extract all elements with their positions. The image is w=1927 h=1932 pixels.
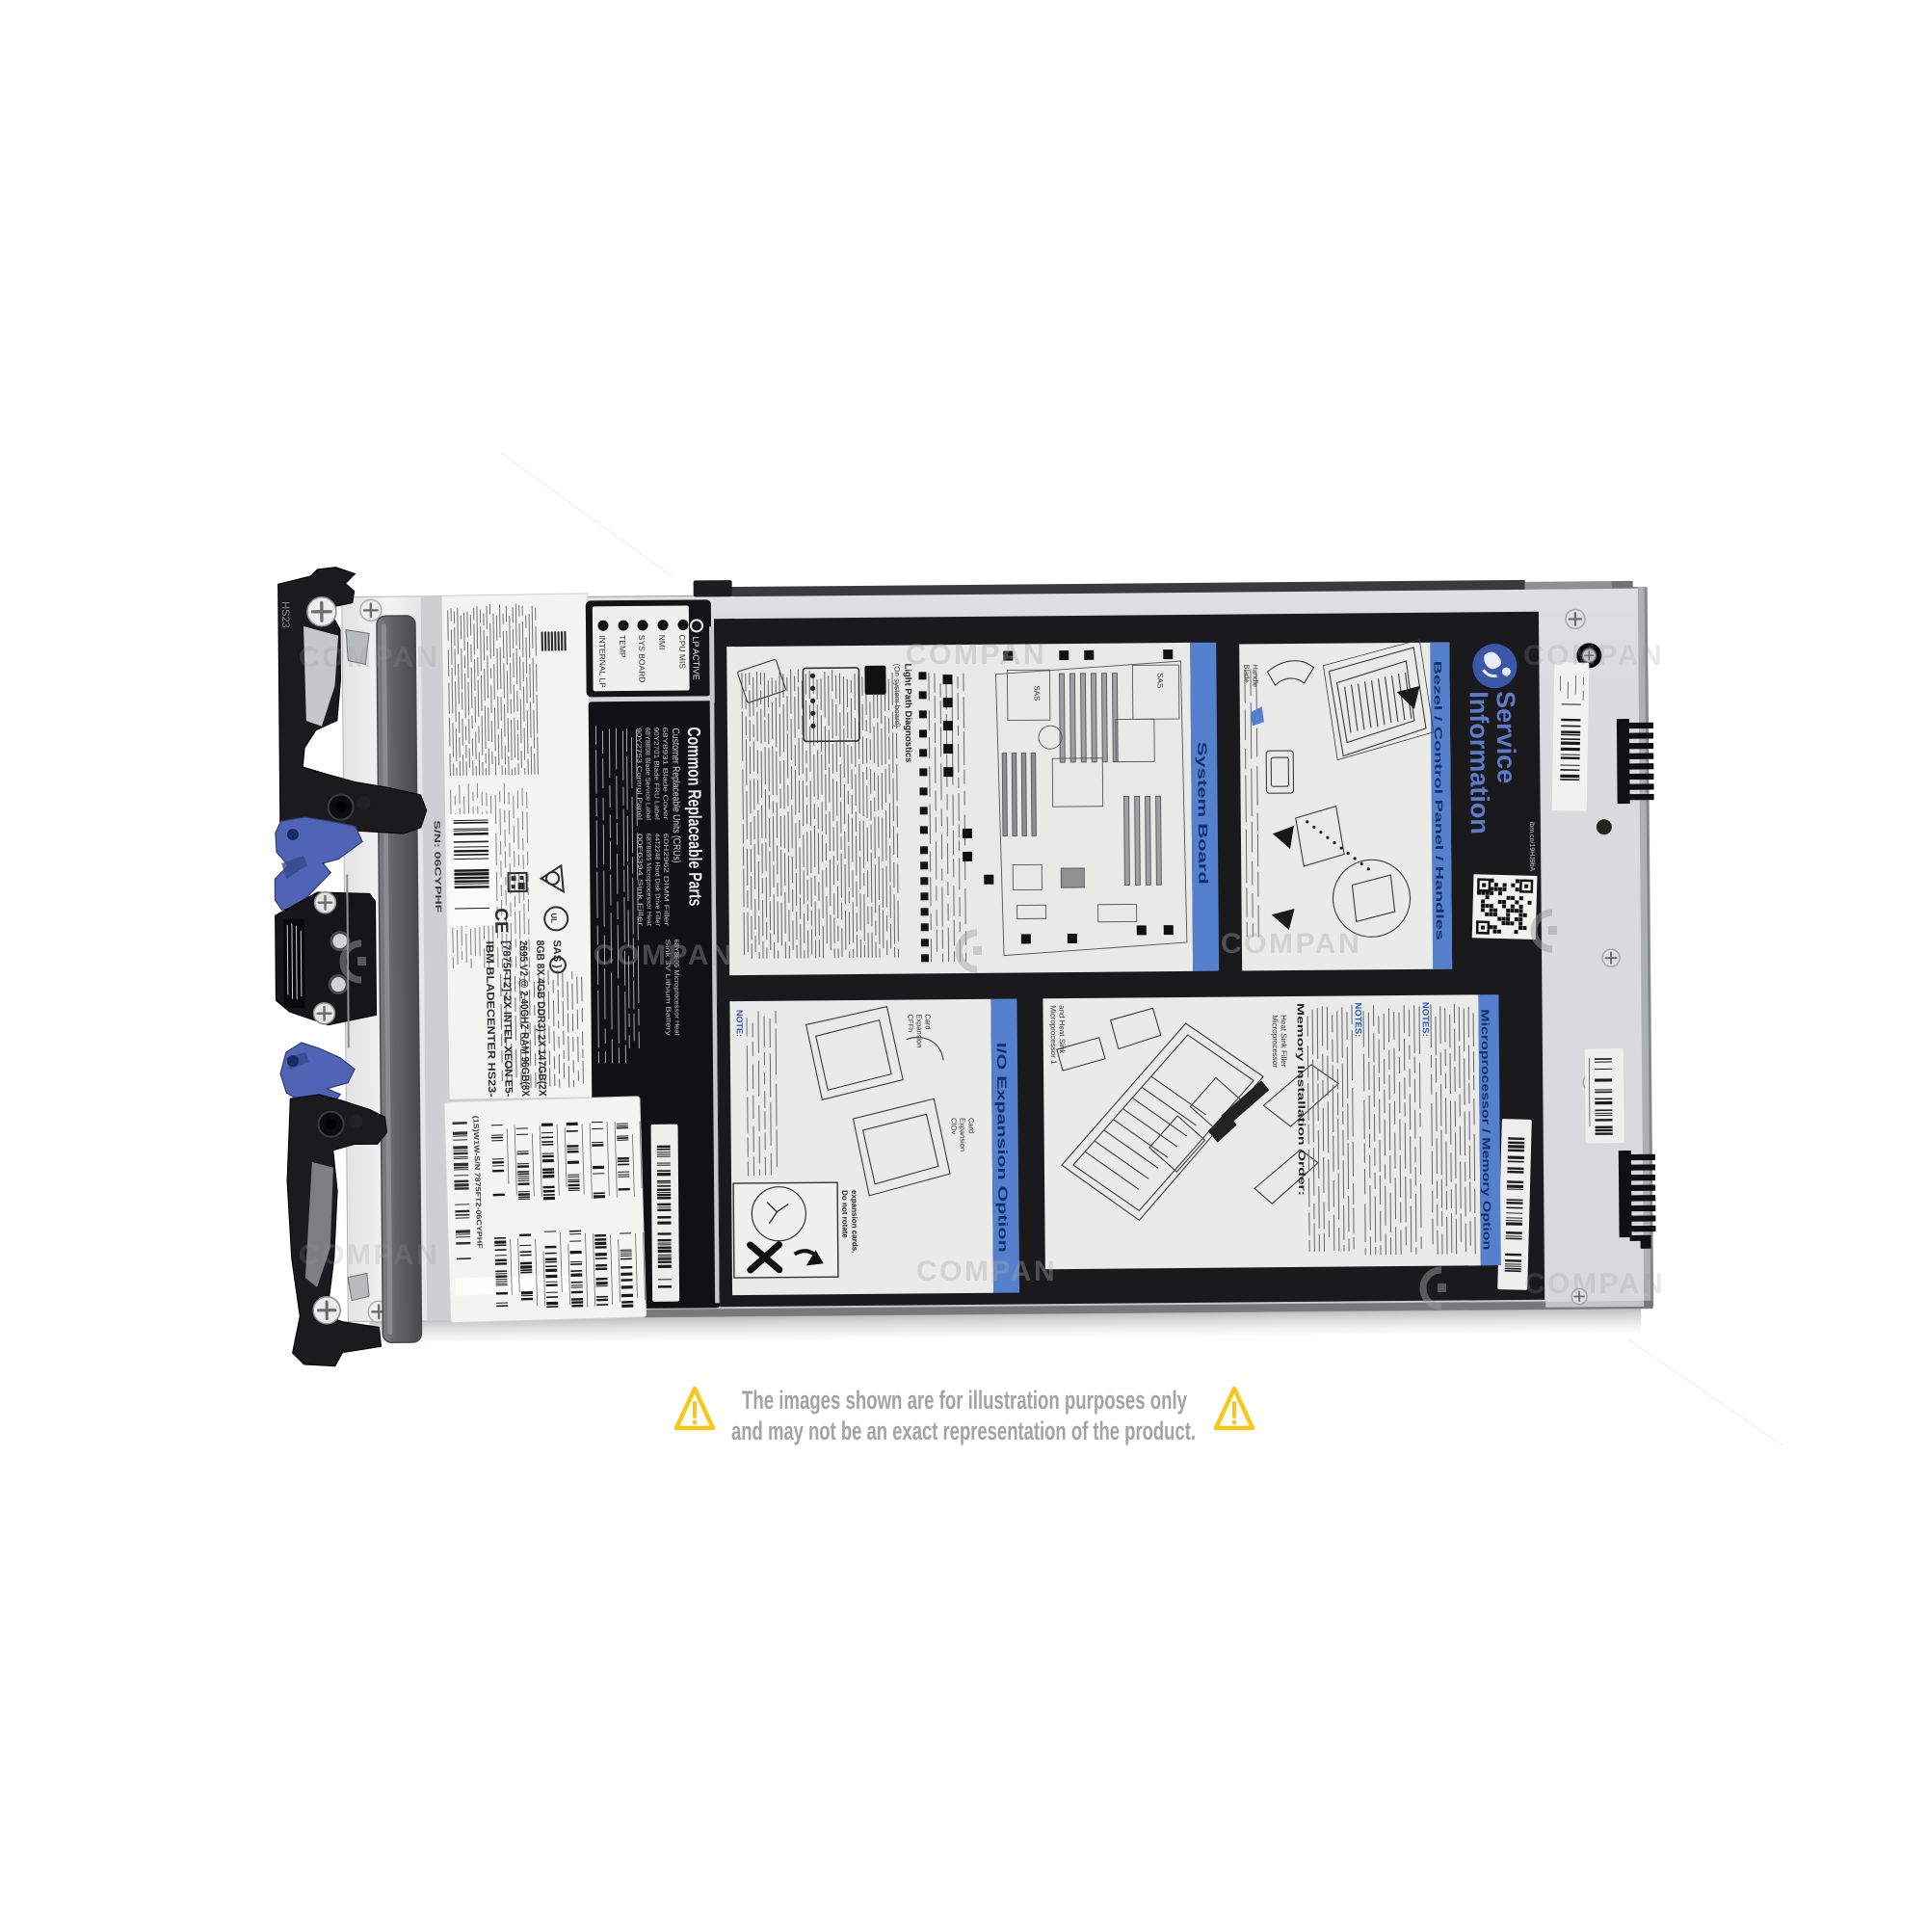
svg-text:expansion cards.: expansion cards. bbox=[850, 1190, 859, 1253]
svg-text:Card: Card bbox=[924, 1014, 933, 1029]
svg-text:COMPAN: COMPAN bbox=[594, 940, 734, 971]
svg-text:Expansion: Expansion bbox=[915, 1014, 924, 1047]
svg-text:COMPAN: COMPAN bbox=[1524, 1268, 1665, 1300]
svg-text:COMPAN: COMPAN bbox=[1221, 928, 1361, 960]
svg-text:IBM BLADECENTER HS23-: IBM BLADECENTER HS23- bbox=[484, 940, 498, 1098]
svg-text:UL: UL bbox=[549, 913, 558, 923]
svg-text:COMPAN: COMPAN bbox=[906, 639, 1046, 671]
svg-text:SYS BOARD: SYS BOARD bbox=[637, 635, 647, 683]
svg-text:System Board: System Board bbox=[1195, 742, 1210, 885]
svg-text:68Y8695 Microprocessor Heat: 68Y8695 Microprocessor Heat bbox=[645, 834, 652, 926]
svg-text:SAS: SAS bbox=[1155, 673, 1164, 688]
svg-text:2695 V2 @ 2.40GHZ RAM 96GB(8X: 2695 V2 @ 2.40GHZ RAM 96GB(8X bbox=[517, 940, 532, 1098]
svg-text:Memory Installation Order:: Memory Installation Order: bbox=[1294, 1003, 1307, 1196]
svg-text:SAS: SAS bbox=[1033, 685, 1042, 701]
svg-text:Bezel / Control Panel / Handle: Bezel / Control Panel / Handles bbox=[1431, 661, 1445, 940]
svg-text:and may not be an exact repres: and may not be an exact representation o… bbox=[731, 1416, 1196, 1445]
svg-text:[7875FT2]-2X INTEL XEON E5-: [7875FT2]-2X INTEL XEON E5- bbox=[500, 940, 515, 1098]
svg-text:The images shown are for illus: The images shown are for illustration pu… bbox=[742, 1386, 1187, 1415]
svg-text:NOTES:: NOTES: bbox=[1419, 1002, 1430, 1037]
svg-text:S/N: 06CYPHF: S/N: 06CYPHF bbox=[433, 820, 444, 913]
svg-text:I/O Expansion Option: I/O Expansion Option bbox=[994, 1043, 1011, 1253]
svg-text:Light Path Diagnostics: Light Path Diagnostics bbox=[902, 663, 913, 762]
svg-text:LP ACTIVE: LP ACTIVE bbox=[691, 636, 700, 679]
svg-text:NOTES:: NOTES: bbox=[1352, 1002, 1362, 1037]
svg-text:Expansion: Expansion bbox=[958, 1118, 966, 1151]
svg-text:Customer Replaceable Units (CR: Customer Replaceable Units (CRUs) bbox=[670, 728, 682, 863]
svg-text:68Y8931 Blade Cover: 68Y8931 Blade Cover bbox=[661, 728, 669, 821]
svg-text:8GB 8X 4GB DDR3) 2X 147GB(2X: 8GB 8X 4GB DDR3) 2X 147GB(2X bbox=[534, 940, 548, 1098]
svg-text:CIOv: CIOv bbox=[949, 1118, 958, 1134]
svg-text:Card: Card bbox=[966, 1118, 975, 1133]
svg-text:44T2248 Hard Disk Drive Fille: 44T2248 Hard Disk Drive Filler bbox=[653, 834, 661, 927]
svg-text:Handle: Handle bbox=[1251, 664, 1259, 687]
svg-text:COMPAN: COMPAN bbox=[916, 1256, 1057, 1287]
svg-text:COMPAN: COMPAN bbox=[299, 642, 439, 674]
svg-text:NMI: NMI bbox=[657, 635, 667, 650]
svg-text:90Y2701 Blade FRU Label: 90Y2701 Blade FRU Label bbox=[652, 728, 660, 821]
svg-text:TEMP: TEMP bbox=[618, 635, 627, 658]
svg-text:Service: Service bbox=[1491, 691, 1521, 783]
svg-text:SAS ): SAS ) bbox=[551, 940, 563, 968]
svg-text:and Heat Sink: and Heat Sink bbox=[1057, 1005, 1066, 1054]
svg-text:Do not rotate: Do not rotate bbox=[840, 1190, 849, 1238]
svg-text:Information: Information bbox=[1465, 691, 1494, 834]
svg-text:60H2962 DIMM Filler: 60H2962 DIMM Filler bbox=[662, 834, 670, 927]
svg-text:ibm.co/19HJ9bA: ibm.co/19HJ9bA bbox=[1528, 822, 1535, 872]
svg-text:NOTE:: NOTE: bbox=[734, 1010, 744, 1037]
svg-text:COMPAN: COMPAN bbox=[1523, 640, 1664, 672]
svg-text:Microprocessor: Microprocessor bbox=[1271, 1015, 1280, 1068]
svg-text:COMPAN: COMPAN bbox=[299, 1239, 439, 1271]
svg-text:HS23: HS23 bbox=[279, 601, 291, 628]
svg-text:Microprocessor 1: Microprocessor 1 bbox=[1048, 1005, 1058, 1065]
svg-text:Microprocessor / Memory Option: Microprocessor / Memory Option bbox=[1479, 1009, 1492, 1250]
svg-text:Heat Sink Filler: Heat Sink Filler bbox=[1280, 1015, 1288, 1068]
svg-text:CE: CE bbox=[490, 908, 511, 934]
svg-text:68Y8898 Blade Service Label: 68Y8898 Blade Service Label bbox=[644, 728, 651, 821]
svg-text:CPU MIS: CPU MIS bbox=[677, 634, 687, 669]
svg-text:INTERNAL LP: INTERNAL LP bbox=[597, 635, 607, 688]
svg-text:Common Replaceable Parts: Common Replaceable Parts bbox=[683, 727, 705, 906]
svg-text:CFFh: CFFh bbox=[907, 1014, 915, 1032]
svg-text:(On system board): (On system board) bbox=[892, 664, 902, 728]
svg-text:Blade: Blade bbox=[1242, 664, 1251, 682]
